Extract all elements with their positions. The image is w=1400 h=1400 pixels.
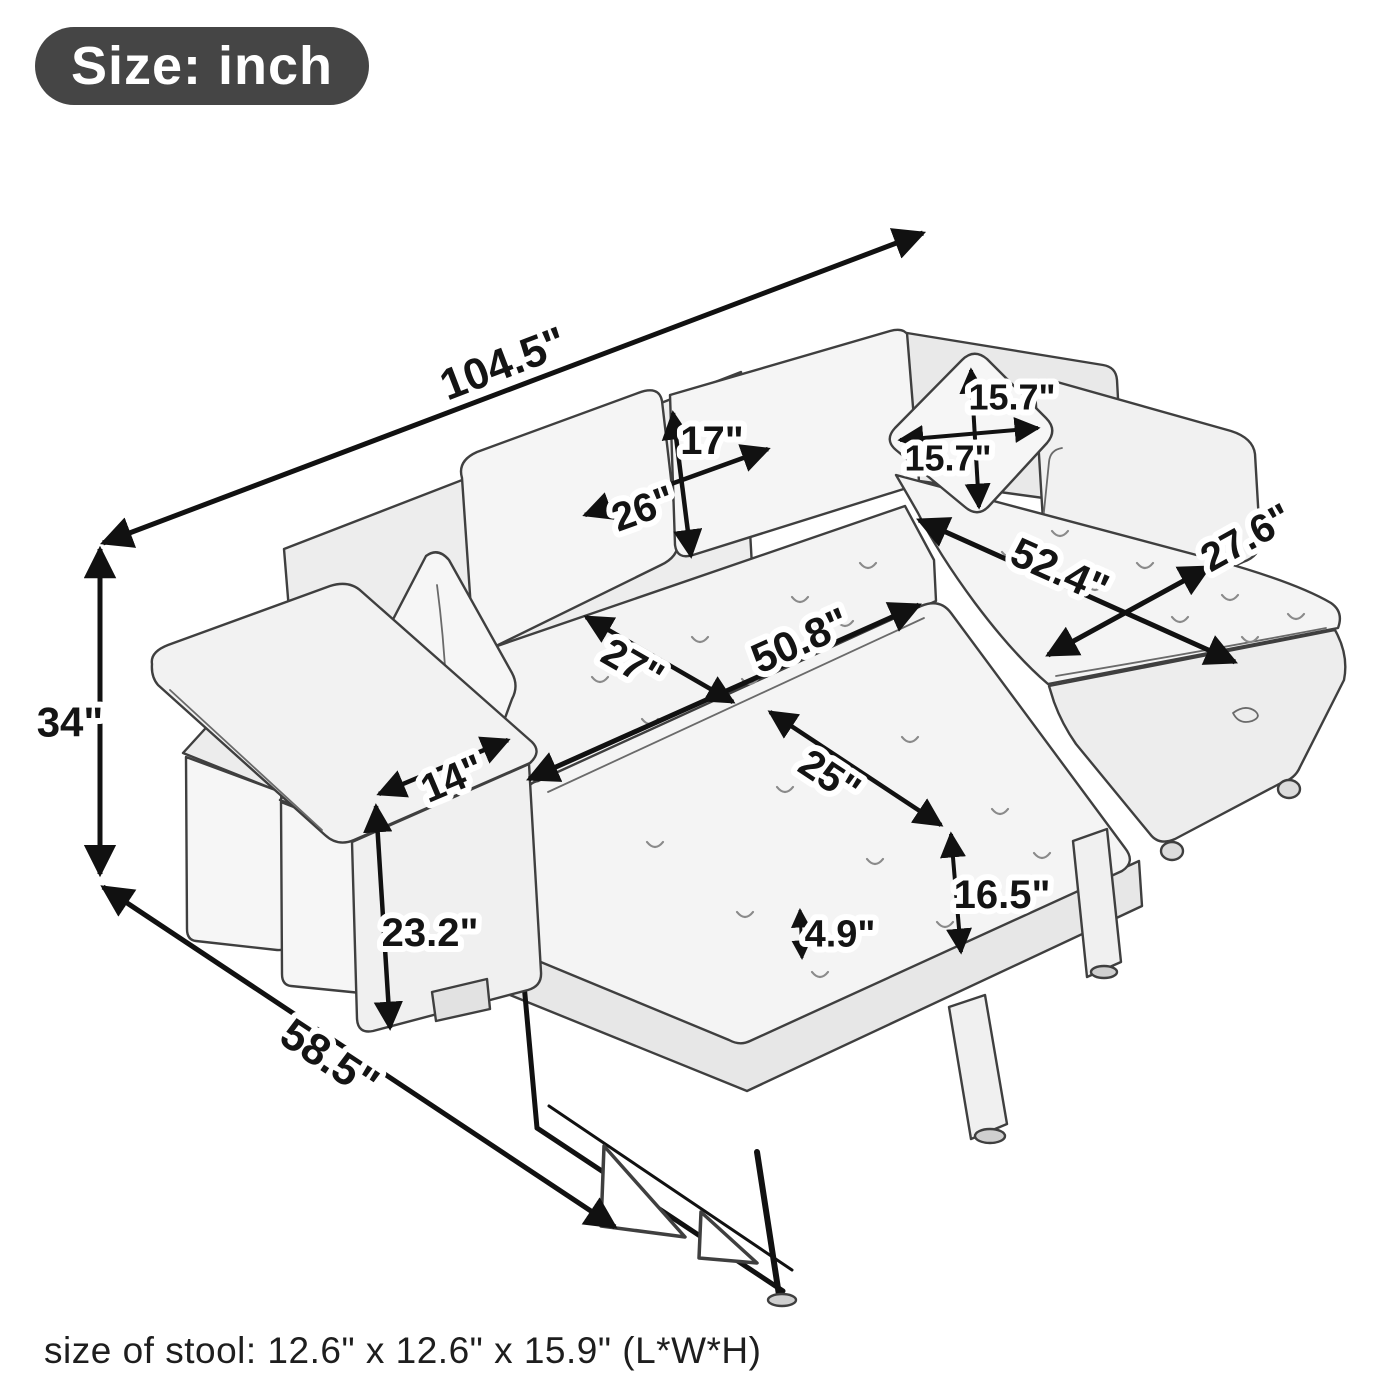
dim-label-pullout-height: 16.5" <box>954 873 1051 917</box>
chaise-foot-left <box>1161 842 1183 860</box>
dim-label-overall-width: 104.5" <box>433 318 573 411</box>
bed-leg-right-foot <box>1091 966 1117 978</box>
dim-label-overall-height: 34" <box>37 699 104 746</box>
sofa-dimension-diagram: 104.5" 34" 58.5" 17" 26" 15.7" 15.7" 52.… <box>0 0 1400 1400</box>
dim-label-back-cushion-height: 17" <box>680 419 743 463</box>
bed-leg-middle-foot <box>975 1129 1005 1143</box>
frame-rail-upper <box>549 1106 792 1270</box>
frame-brace-2 <box>699 1212 757 1263</box>
dim-label-armrest-height: 23.2" <box>382 911 479 955</box>
frame-foot-front <box>768 1294 796 1306</box>
sofa-sketch <box>152 330 1346 1306</box>
dim-label-pillow-height: 15.7" <box>968 377 1055 418</box>
stool-size-note: size of stool: 12.6" x 12.6" x 15.9" (L*… <box>44 1330 761 1372</box>
chaise-foot-right <box>1278 780 1300 798</box>
size-unit-badge: Size: inch <box>35 27 369 105</box>
diagram-canvas: 104.5" 34" 58.5" 17" 26" 15.7" 15.7" 52.… <box>0 0 1400 1400</box>
dim-arrow-mattress-thickness <box>800 910 802 958</box>
dim-label-mattress-thickness: 4.9" <box>805 913 876 955</box>
bed-leg-middle <box>949 995 1007 1139</box>
badge-label: Size: inch <box>71 36 333 96</box>
dim-label-pillow-width: 15.7" <box>904 438 991 479</box>
